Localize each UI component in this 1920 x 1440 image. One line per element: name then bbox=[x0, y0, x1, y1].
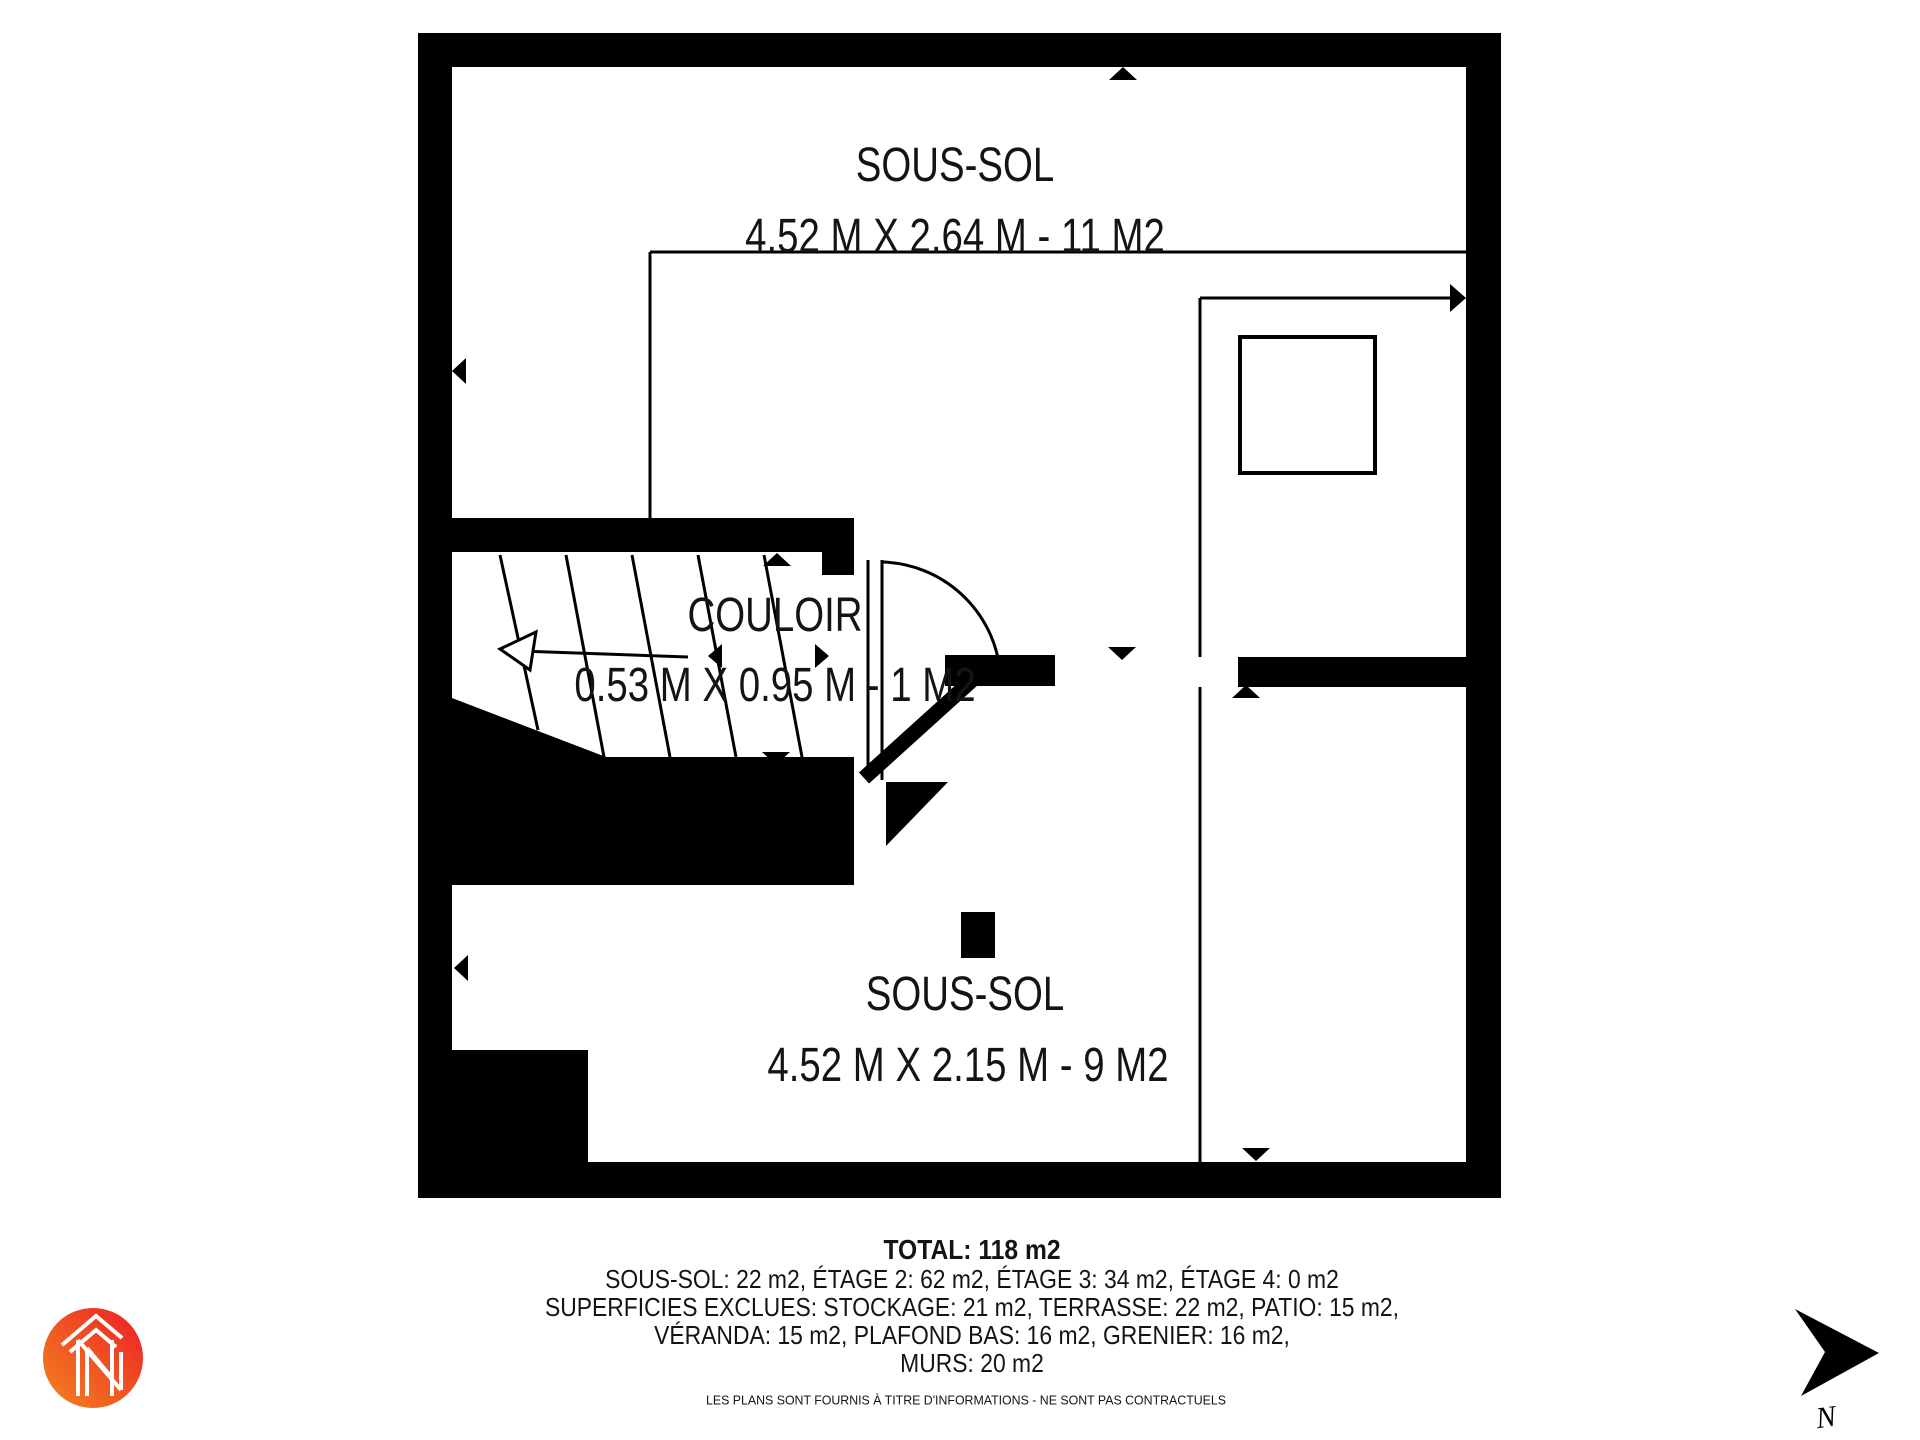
room-label-couloir: COULOIR bbox=[688, 592, 863, 640]
agency-logo-icon bbox=[43, 1308, 143, 1408]
stair-tread bbox=[764, 555, 802, 757]
room-dims-couloir: 0.53 M X 0.95 M - 1 M2 bbox=[574, 662, 975, 710]
marker-up-icon bbox=[763, 553, 791, 566]
room-dims-sous-sol-top: 4.52 M X 2.64 M - 11 M2 bbox=[745, 213, 1165, 261]
marker-left-icon bbox=[452, 358, 466, 384]
outer-walls bbox=[418, 33, 1501, 1198]
marker-left-icon bbox=[454, 955, 468, 981]
stair-tread bbox=[566, 555, 604, 757]
marker-right-icon bbox=[1450, 284, 1466, 312]
pillar bbox=[961, 912, 995, 958]
summary-excluded-2: VÉRANDA: 15 m2, PLAFOND BAS: 16 m2, GREN… bbox=[654, 1322, 1290, 1348]
north-arrow-icon bbox=[1795, 1309, 1879, 1396]
window bbox=[1240, 337, 1375, 473]
room-dims-sous-sol-bottom: 4.52 M X 2.15 M - 9 M2 bbox=[767, 1042, 1168, 1090]
summary-total: TOTAL: 118 m2 bbox=[883, 1236, 1060, 1264]
summary-walls: MURS: 20 m2 bbox=[900, 1350, 1044, 1376]
stair-direction-line bbox=[520, 651, 688, 657]
marker-down-icon bbox=[1108, 647, 1136, 660]
stairs bbox=[500, 555, 802, 757]
door-swing-arc bbox=[882, 562, 1000, 670]
summary-floors: SOUS-SOL: 22 m2, ÉTAGE 2: 62 m2, ÉTAGE 3… bbox=[605, 1266, 1339, 1292]
disclaimer: LES PLANS SONT FOURNIS À TITRE D'INFORMA… bbox=[706, 1393, 1226, 1408]
marker-down-icon bbox=[1242, 1148, 1270, 1161]
interior-walls bbox=[418, 518, 1466, 958]
room-label-sous-sol-bottom: SOUS-SOL bbox=[866, 971, 1064, 1019]
summary-excluded-1: SUPERFICIES EXCLUES: STOCKAGE: 21 m2, TE… bbox=[545, 1294, 1399, 1320]
room-label-sous-sol-top: SOUS-SOL bbox=[856, 142, 1054, 190]
floorplan-page: SOUS-SOL 4.52 M X 2.64 M - 11 M2 COULOIR… bbox=[0, 0, 1920, 1440]
marker-up-icon bbox=[1109, 67, 1137, 80]
